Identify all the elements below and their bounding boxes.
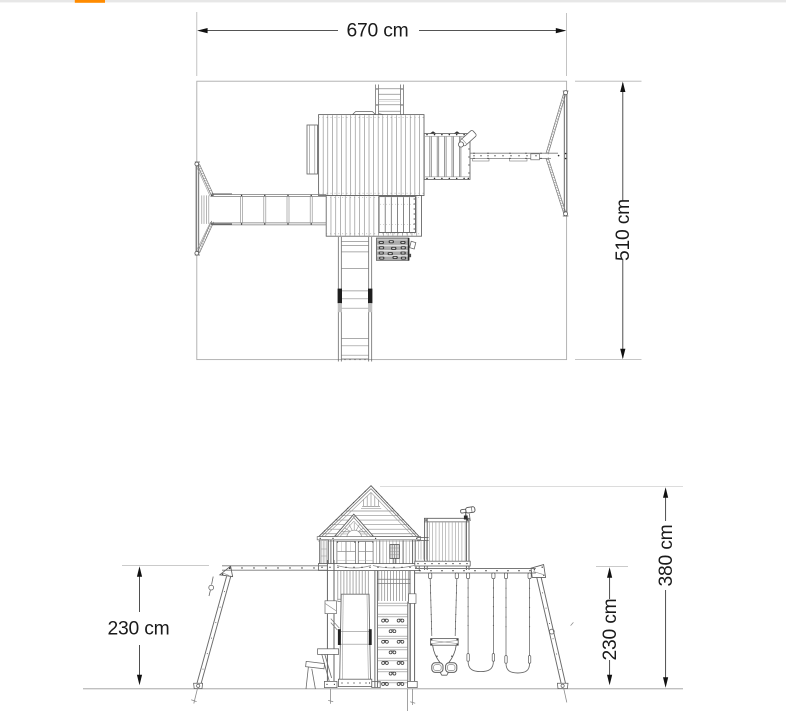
svg-text:380 cm: 380 cm	[656, 524, 677, 586]
svg-text:230 cm: 230 cm	[600, 598, 621, 660]
svg-text:230 cm: 230 cm	[107, 619, 169, 640]
svg-text:670 cm: 670 cm	[346, 21, 408, 42]
svg-text:510 cm: 510 cm	[613, 199, 634, 261]
